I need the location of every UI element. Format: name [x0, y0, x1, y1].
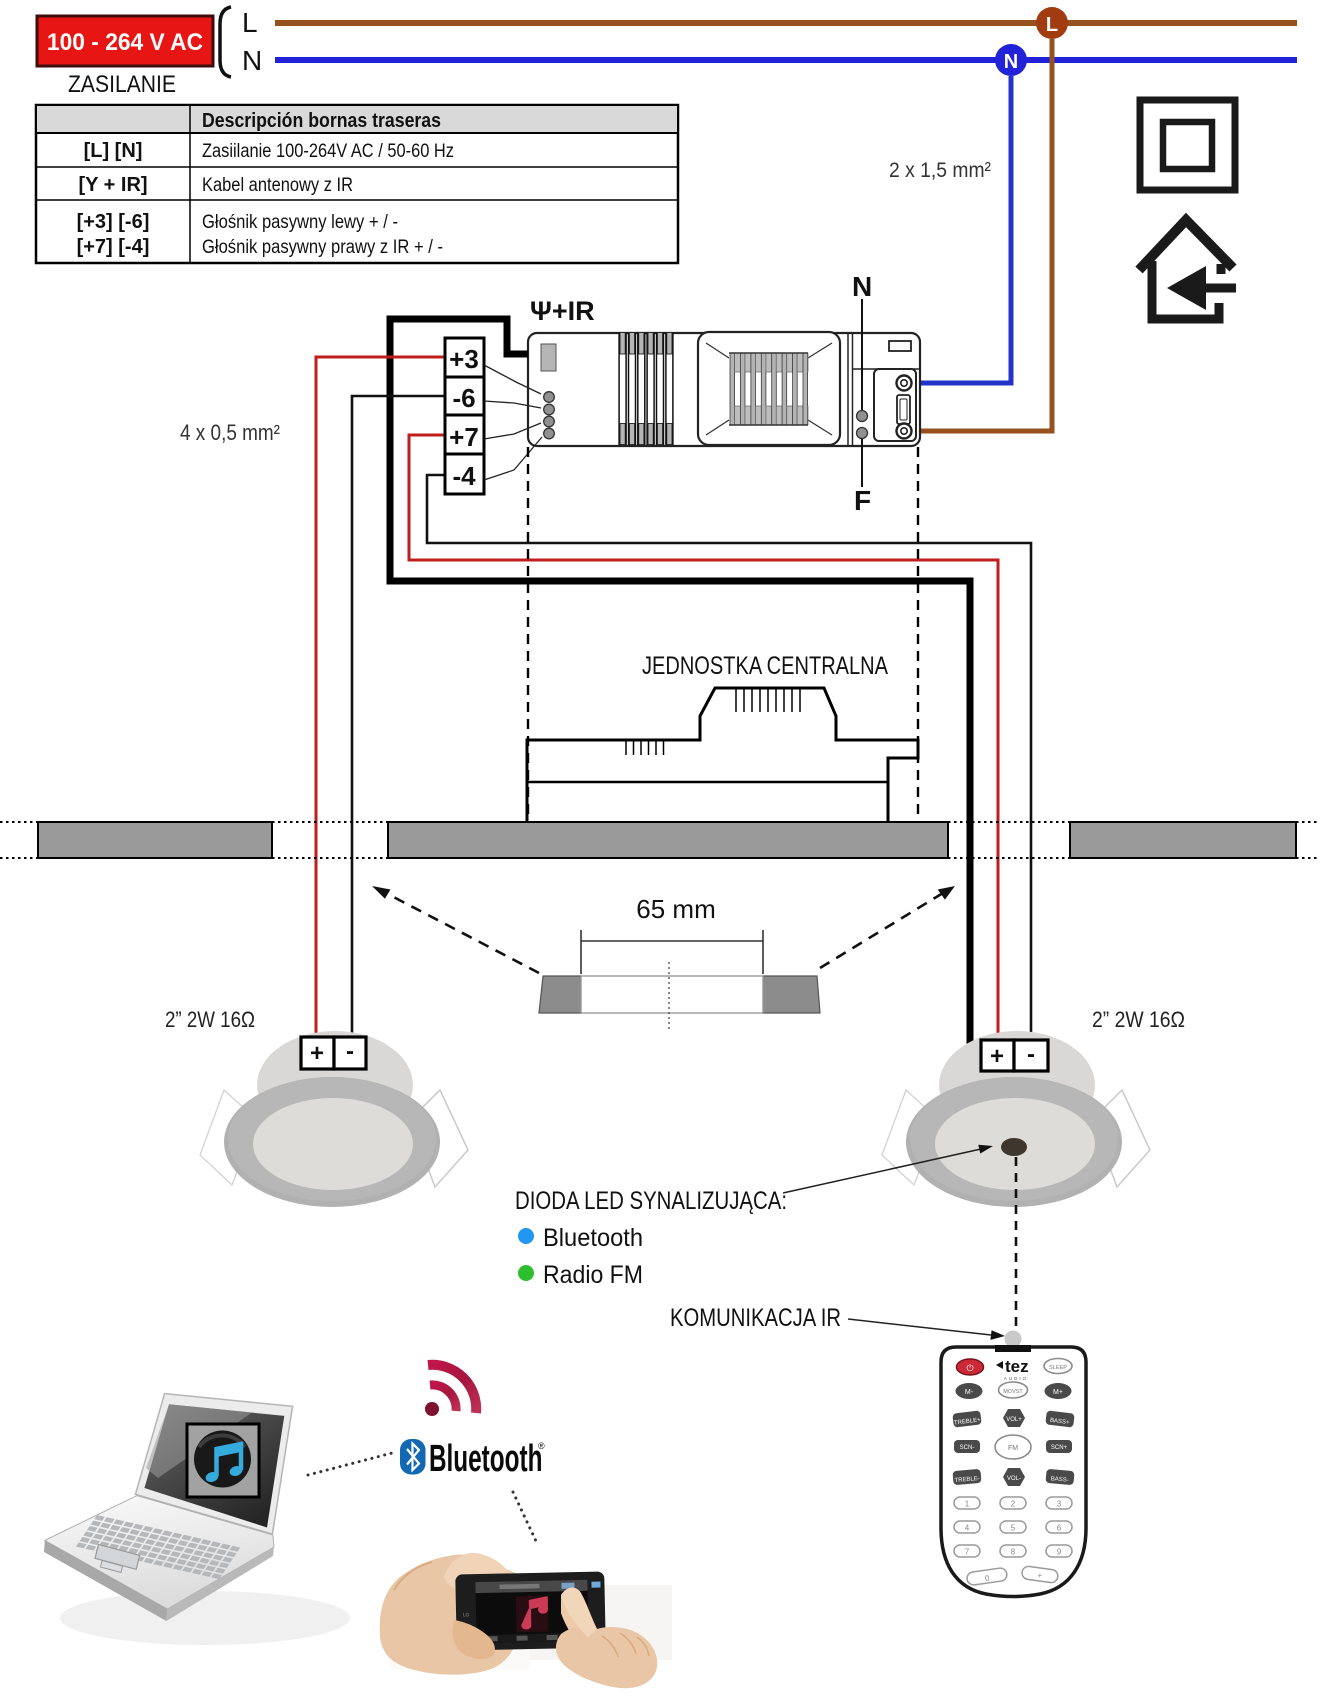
- svg-text:Ψ+IR: Ψ+IR: [530, 296, 595, 326]
- svg-text:ZASILANIE: ZASILANIE: [68, 71, 176, 98]
- svg-text:VOL+: VOL+: [1006, 1417, 1022, 1423]
- svg-text:N: N: [242, 45, 262, 76]
- svg-text:3: 3: [1057, 1500, 1062, 1509]
- svg-text:Bluetooth: Bluetooth: [429, 1436, 542, 1479]
- svg-text:+: +: [310, 1040, 324, 1067]
- svg-text:-: -: [1027, 1041, 1035, 1068]
- svg-text:9: 9: [1057, 1548, 1062, 1557]
- svg-text:SCN-: SCN-: [960, 1445, 975, 1451]
- svg-text:[L] [N]: [L] [N]: [84, 140, 143, 162]
- svg-text:6: 6: [1057, 1524, 1062, 1533]
- svg-text:LG: LG: [463, 1612, 470, 1618]
- svg-text:2 x 1,5 mm²: 2 x 1,5 mm²: [889, 159, 991, 182]
- svg-text:+3: +3: [449, 344, 479, 374]
- svg-text:L: L: [1046, 14, 1058, 36]
- svg-text:1: 1: [965, 1500, 970, 1509]
- svg-text:4: 4: [965, 1524, 970, 1533]
- svg-text:-4: -4: [452, 461, 476, 491]
- svg-text:N: N: [1004, 51, 1018, 73]
- svg-text:SLEEP: SLEEP: [1049, 1365, 1067, 1371]
- svg-text:4 x 0,5 mm²: 4 x 0,5 mm²: [180, 420, 280, 445]
- svg-text:[Y + IR]: [Y + IR]: [78, 174, 147, 196]
- svg-text:F: F: [854, 485, 871, 516]
- svg-text:65 mm: 65 mm: [636, 894, 715, 924]
- svg-text:MOVST: MOVST: [1003, 1389, 1023, 1395]
- svg-text:Descripción bornas traseras: Descripción bornas traseras: [202, 110, 441, 132]
- svg-text:SCN+: SCN+: [1051, 1445, 1068, 1451]
- svg-text:M-: M-: [965, 1389, 974, 1396]
- svg-text:®: ®: [538, 1441, 545, 1451]
- svg-text:⏻: ⏻: [966, 1363, 973, 1373]
- svg-text:2: 2: [1011, 1500, 1016, 1509]
- svg-text:tez: tez: [1005, 1357, 1029, 1376]
- svg-text:[+7] [-4]: [+7] [-4]: [77, 236, 150, 258]
- svg-text:100 - 264 V AC: 100 - 264 V AC: [47, 29, 203, 56]
- svg-text:-: -: [346, 1038, 354, 1065]
- svg-text:Zasiilanie 100-264V AC / 50-60: Zasiilanie 100-264V AC / 50-60 Hz: [202, 141, 454, 162]
- svg-text:Kabel antenowy z IR: Kabel antenowy z IR: [202, 175, 353, 196]
- svg-text:JEDNOSTKA CENTRALNA: JEDNOSTKA CENTRALNA: [642, 652, 888, 680]
- svg-text:VOL-: VOL-: [1007, 1476, 1021, 1482]
- svg-text:[+3] [-6]: [+3] [-6]: [77, 211, 150, 233]
- svg-text:2” 2W 16Ω: 2” 2W 16Ω: [165, 1007, 255, 1032]
- svg-text:Głośnik pasywny prawy z IR + /: Głośnik pasywny prawy z IR + / -: [202, 237, 443, 258]
- svg-text:5: 5: [1011, 1524, 1016, 1533]
- svg-text:2” 2W 16Ω: 2” 2W 16Ω: [1092, 1007, 1185, 1032]
- svg-text:Bluetooth: Bluetooth: [543, 1224, 643, 1252]
- svg-text:KOMUNIKACJA IR: KOMUNIKACJA IR: [670, 1304, 841, 1332]
- svg-text:-6: -6: [452, 383, 475, 413]
- svg-text:8: 8: [1011, 1548, 1016, 1557]
- svg-text:Radio FM: Radio FM: [543, 1261, 643, 1289]
- svg-text:N: N: [852, 271, 872, 302]
- svg-text:+7: +7: [449, 422, 479, 452]
- svg-text:Głośnik pasywny lewy + / -: Głośnik pasywny lewy + / -: [202, 212, 398, 233]
- svg-text:7: 7: [965, 1548, 970, 1557]
- svg-text:FM: FM: [1008, 1445, 1018, 1452]
- svg-text:+: +: [990, 1043, 1004, 1070]
- svg-text:M+: M+: [1053, 1389, 1063, 1396]
- svg-text:DIODA LED SYNALIZUJĄCA:: DIODA LED SYNALIZUJĄCA:: [515, 1187, 787, 1215]
- svg-text:L: L: [242, 7, 258, 38]
- svg-text:AUDIO: AUDIO: [1004, 1376, 1028, 1381]
